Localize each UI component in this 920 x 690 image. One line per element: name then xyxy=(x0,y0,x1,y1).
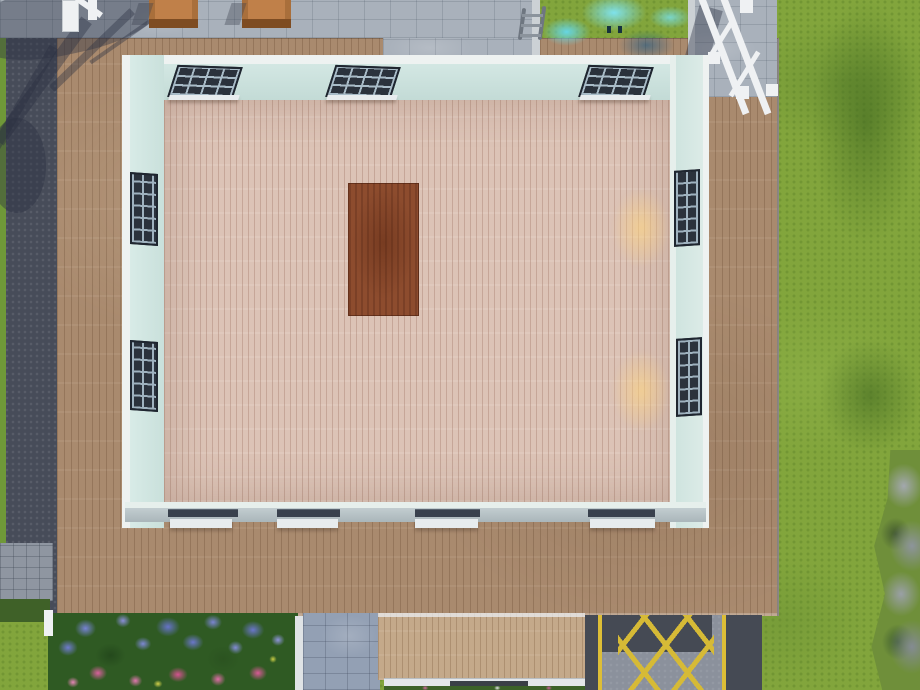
hatched-no-stopping-zone xyxy=(618,615,714,690)
window-sill xyxy=(170,519,232,528)
wall-face xyxy=(130,55,164,528)
window-sill xyxy=(277,519,338,528)
ladder-rung xyxy=(520,34,541,37)
grass-dark-patch xyxy=(820,338,920,453)
window[interactable] xyxy=(676,337,702,417)
pool-ladder[interactable] xyxy=(516,6,554,44)
fence-post xyxy=(88,0,97,20)
window-sill xyxy=(326,95,397,100)
wall-north[interactable] xyxy=(125,55,706,100)
curb-strip xyxy=(295,616,303,690)
window[interactable] xyxy=(674,169,700,247)
cobblestone-corner xyxy=(0,543,53,601)
window[interactable] xyxy=(415,509,480,517)
fence-post xyxy=(708,52,720,64)
light-pool xyxy=(612,188,670,268)
road-yellow-line xyxy=(598,615,602,690)
railing-northwest xyxy=(58,0,108,36)
deck-chair[interactable] xyxy=(149,0,198,28)
wall-trim xyxy=(703,55,709,528)
pool-depth-marker xyxy=(618,26,622,33)
pool-water[interactable] xyxy=(540,0,688,58)
grass-dark-patch xyxy=(812,0,920,245)
pool-depth-marker xyxy=(607,26,611,33)
wall-trim xyxy=(122,55,130,528)
fence-post xyxy=(736,86,749,99)
road-shoulder xyxy=(726,615,762,690)
tree-shadow xyxy=(0,118,46,213)
room-floor[interactable] xyxy=(164,99,674,502)
wall-east[interactable] xyxy=(670,55,709,528)
ladder-rung xyxy=(522,14,543,17)
window[interactable] xyxy=(325,65,401,99)
fence-post xyxy=(766,84,778,96)
wall-south[interactable] xyxy=(125,502,706,528)
window[interactable] xyxy=(588,509,655,517)
wall-west[interactable] xyxy=(122,55,164,528)
fence-post xyxy=(62,0,79,32)
rocks-bushes xyxy=(866,450,920,690)
stone-path xyxy=(303,613,380,690)
wall-face xyxy=(676,55,703,528)
road xyxy=(585,615,762,690)
window-sill xyxy=(590,519,655,528)
dark-green-square xyxy=(0,599,50,622)
railing-pool xyxy=(702,0,790,112)
lot-scene: Top-down build-mode view of a suburban g… xyxy=(0,0,920,690)
fence-post xyxy=(44,610,53,636)
ladder-rung xyxy=(521,24,542,27)
window[interactable] xyxy=(277,509,340,517)
porch-deck[interactable] xyxy=(378,613,585,680)
window[interactable] xyxy=(130,340,158,412)
fence-post xyxy=(740,0,753,13)
flower-bed[interactable] xyxy=(48,613,298,690)
window-sill xyxy=(415,519,478,528)
light-pool xyxy=(612,350,670,432)
border-plants xyxy=(384,686,590,690)
window[interactable] xyxy=(578,65,654,99)
window-sill xyxy=(168,95,239,100)
window[interactable] xyxy=(168,509,238,517)
deck-chair[interactable] xyxy=(242,0,291,28)
rug[interactable] xyxy=(348,183,419,316)
window[interactable] xyxy=(167,65,243,99)
window[interactable] xyxy=(130,172,158,246)
window-sill xyxy=(579,95,650,100)
